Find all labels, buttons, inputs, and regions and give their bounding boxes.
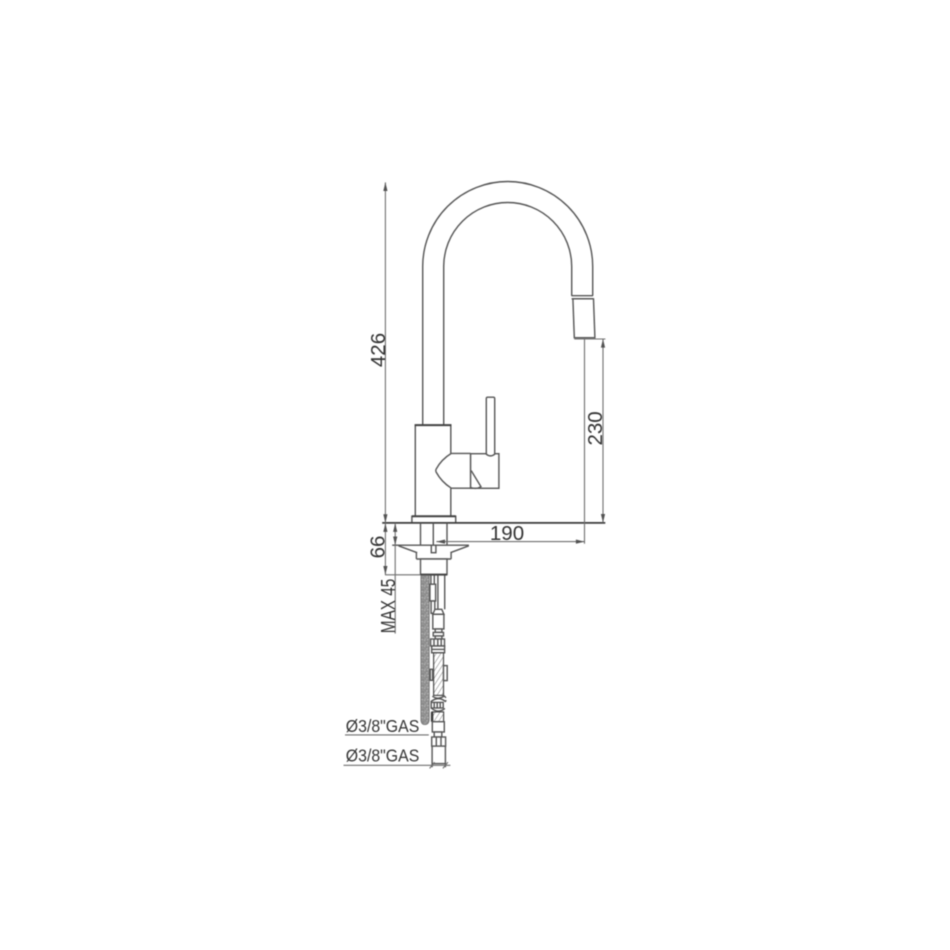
svg-text:MAX 45: MAX 45: [377, 579, 400, 634]
svg-text:190: 190: [490, 522, 524, 545]
svg-text:426: 426: [367, 333, 390, 367]
svg-text:Ø3/8"GAS: Ø3/8"GAS: [346, 717, 420, 736]
svg-text:Ø3/8"GAS: Ø3/8"GAS: [346, 747, 420, 766]
svg-text:230: 230: [584, 411, 607, 445]
svg-text:66: 66: [366, 536, 389, 559]
